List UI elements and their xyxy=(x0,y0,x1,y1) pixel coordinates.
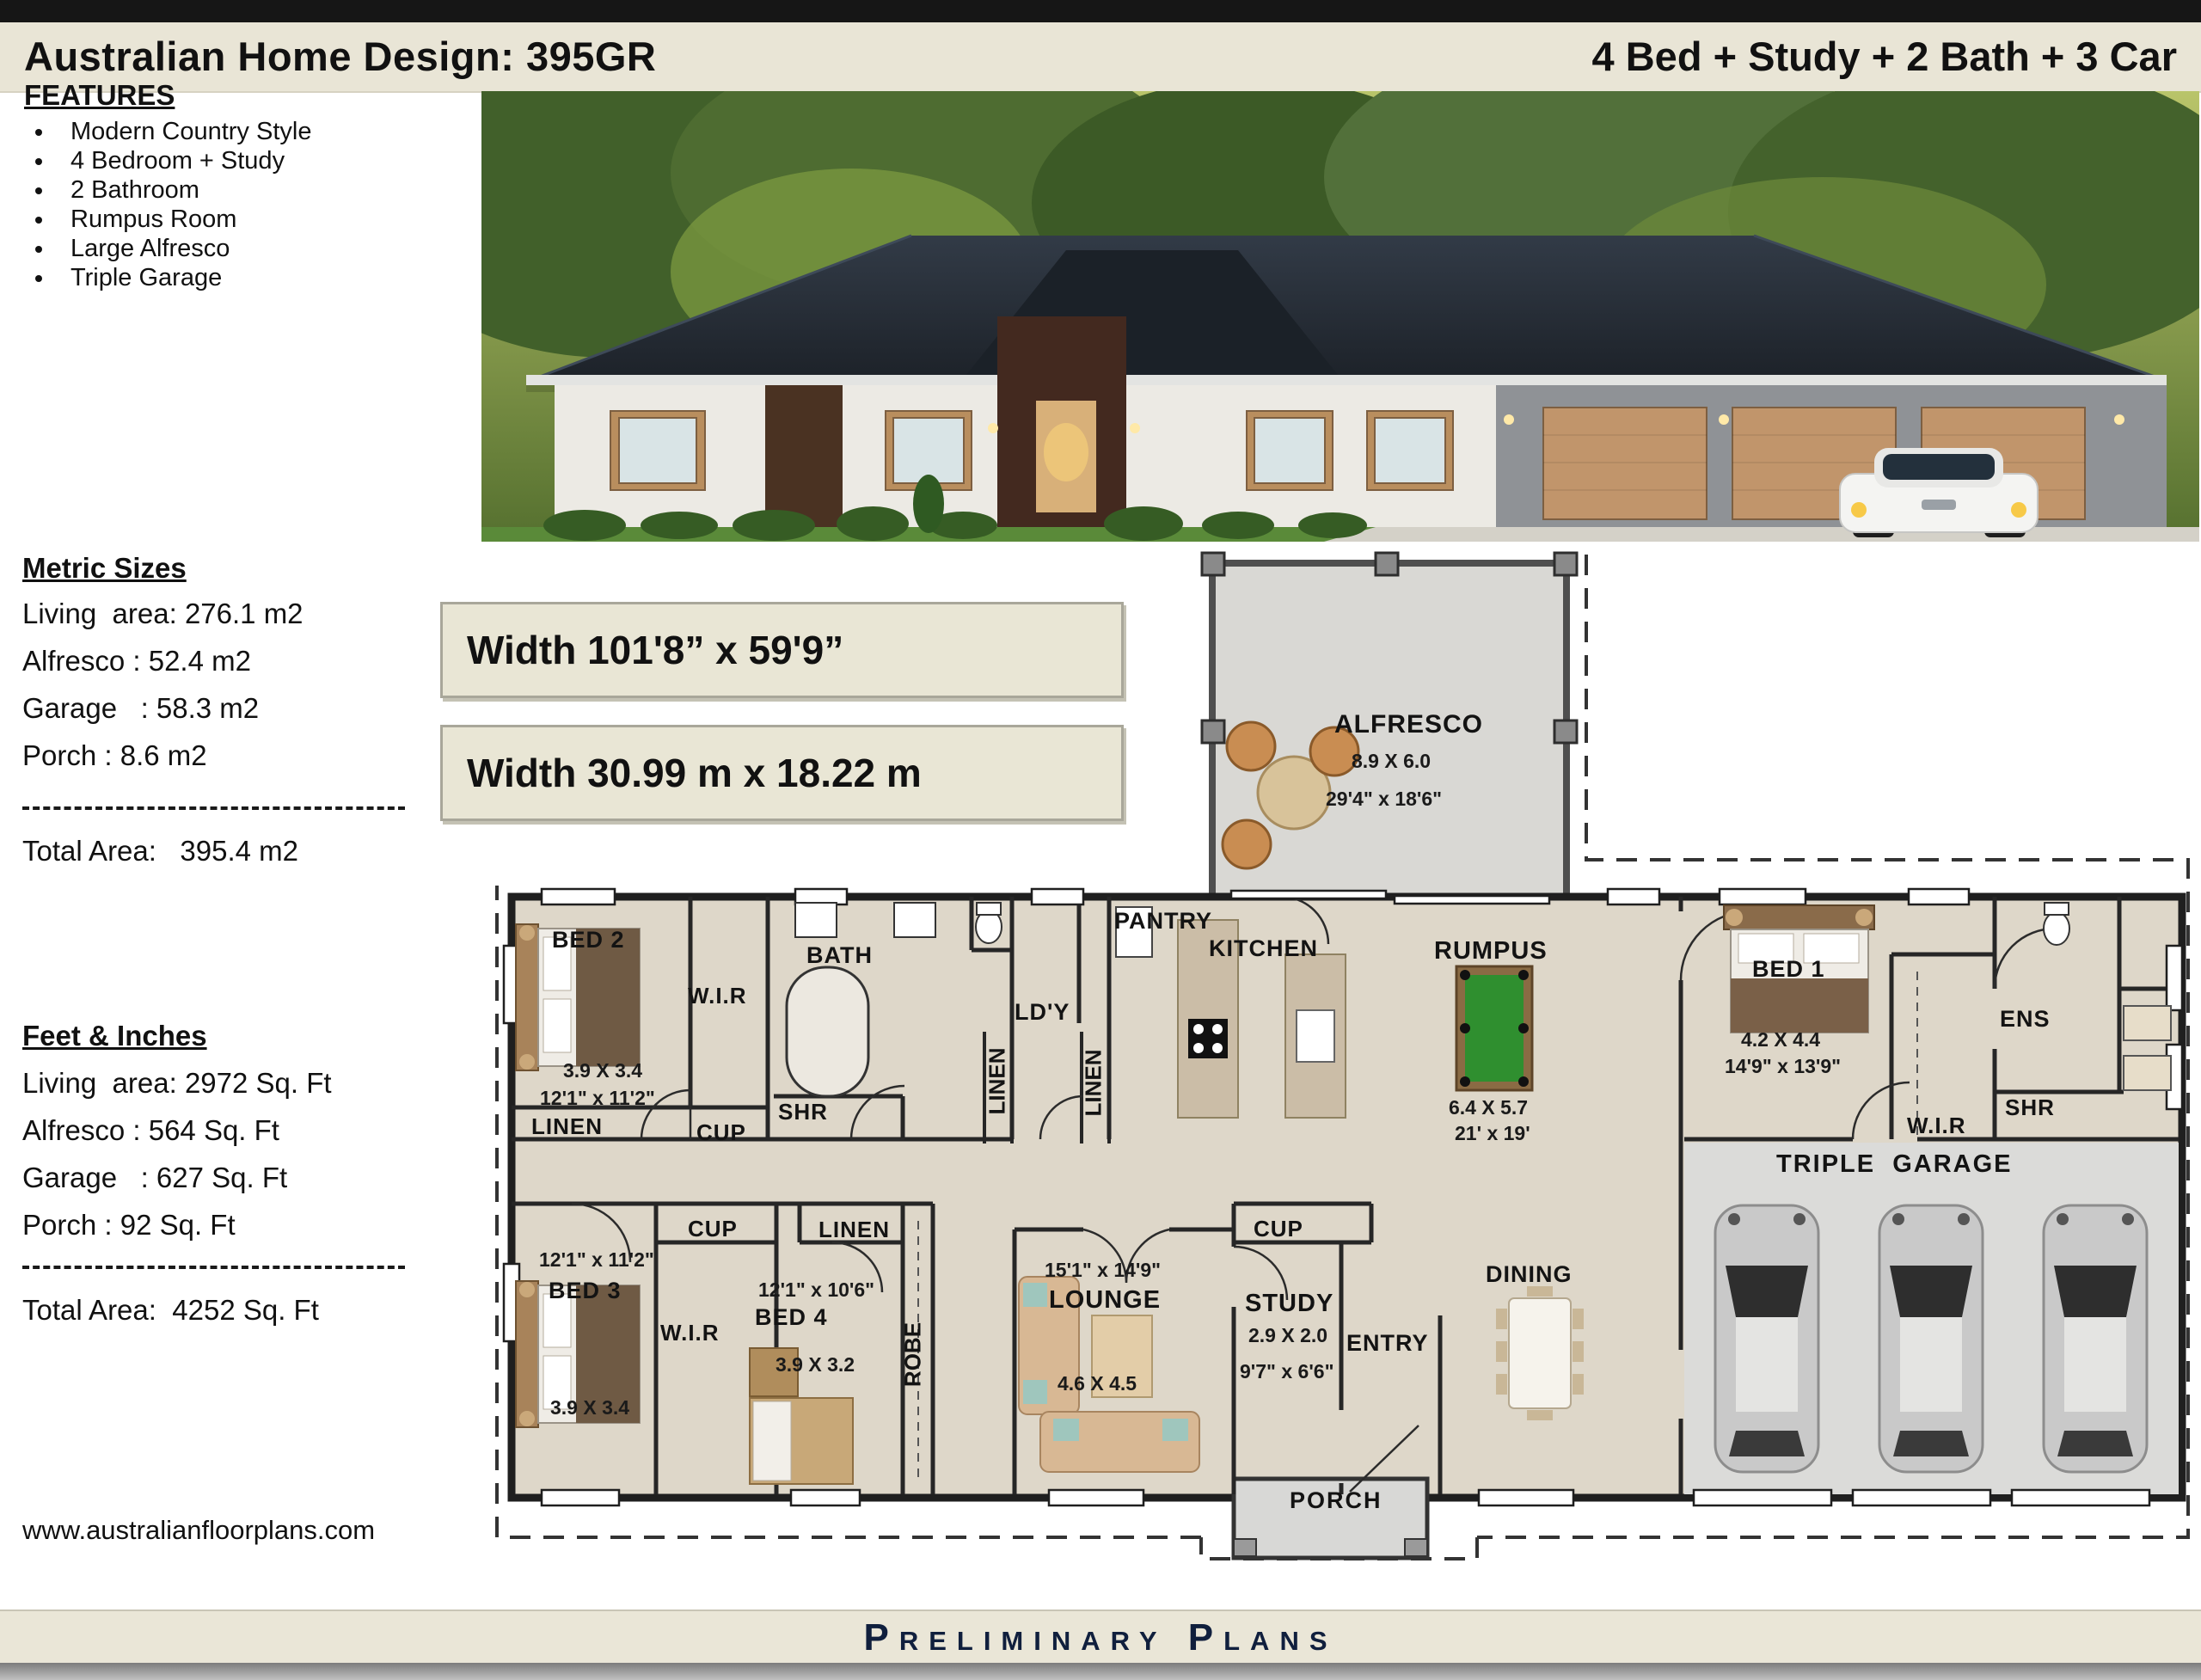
room-label-lounge: LOUNGE xyxy=(1049,1286,1161,1315)
room-dim-rumpus-imperial: 21' x 19' xyxy=(1455,1122,1530,1145)
house-photo xyxy=(481,91,2199,542)
brochure-page: Australian Home Design: 395GR 4 Bed + St… xyxy=(0,0,2201,1680)
room-dim-alfresco-metric: 8.9 X 6.0 xyxy=(1352,750,1431,773)
room-dim-bed4-imperial: 12'1" x 10'6" xyxy=(758,1278,874,1302)
room-dim-bed3-imperial: 12'1" x 11'2" xyxy=(539,1248,654,1272)
feature-item: Rumpus Room xyxy=(55,205,311,234)
metric-total: Total Area: 395.4 m2 xyxy=(22,827,298,874)
feature-item: Large Alfresco xyxy=(55,234,311,263)
feature-item: 4 Bedroom + Study xyxy=(55,146,311,175)
room-label-robe: ROBE xyxy=(900,1308,927,1402)
metric-lines: Living area: 276.1 m2 Alfresco : 52.4 m2… xyxy=(22,590,303,779)
footer-bar: Preliminary Plans xyxy=(0,1609,2201,1665)
room-dim-bed1-imperial: 14'9" x 13'9" xyxy=(1725,1055,1841,1078)
room-dim-bed1-metric: 4.2 X 4.4 xyxy=(1741,1028,1820,1052)
room-label-bed1: BED 1 xyxy=(1752,956,1825,983)
room-label-entry: ENTRY xyxy=(1346,1330,1429,1357)
top-black-bar xyxy=(0,0,2201,22)
metric-line: Garage : 58.3 m2 xyxy=(22,684,303,732)
room-label-wir3: W.I.R xyxy=(660,1320,720,1346)
room-dim-lounge-imperial: 15'1" x 14'9" xyxy=(1045,1259,1161,1282)
room-label-linen2: LINEN xyxy=(984,1034,1011,1129)
room-label-bed2: BED 2 xyxy=(552,927,625,953)
feature-item: Modern Country Style xyxy=(55,117,311,146)
room-label-porch: PORCH xyxy=(1290,1487,1383,1514)
room-dim-lounge-metric: 4.6 X 4.5 xyxy=(1058,1372,1137,1395)
room-label-garage: TRIPLE GARAGE xyxy=(1776,1150,2013,1179)
features-list: Modern Country Style 4 Bedroom + Study 2… xyxy=(26,117,311,292)
room-label-shr2: SHR xyxy=(2005,1094,2055,1121)
imperial-line: Living area: 2972 Sq. Ft xyxy=(22,1059,332,1107)
room-label-alfresco: ALFRESCO xyxy=(1334,710,1483,739)
room-dim-bed2-metric: 3.9 X 3.4 xyxy=(563,1059,642,1082)
features-heading: FEATURES xyxy=(24,79,175,112)
bottom-gray-bar xyxy=(0,1663,2201,1680)
room-label-linen3: LINEN xyxy=(1081,1036,1107,1131)
room-label-rumpus: RUMPUS xyxy=(1434,937,1548,966)
room-dim-rumpus-metric: 6.4 X 5.7 xyxy=(1449,1096,1528,1119)
feature-item: 2 Bathroom xyxy=(55,175,311,205)
room-label-wir1: W.I.R xyxy=(1907,1113,1966,1139)
room-label-bed3: BED 3 xyxy=(549,1278,622,1304)
imperial-line: Porch : 92 Sq. Ft xyxy=(22,1201,332,1248)
room-label-study: STUDY xyxy=(1245,1290,1333,1318)
imperial-lines: Living area: 2972 Sq. Ft Alfresco : 564 … xyxy=(22,1059,332,1248)
room-label-wir2: W.I.R xyxy=(688,983,747,1009)
dashed-separator xyxy=(22,1266,405,1269)
room-label-cup2: CUP xyxy=(688,1216,738,1242)
floor-plan xyxy=(490,542,2192,1565)
page-subtitle: 4 Bed + Study + 2 Bath + 3 Car xyxy=(1592,22,2177,91)
feature-item: Triple Garage xyxy=(55,263,311,292)
metric-line: Alfresco : 52.4 m2 xyxy=(22,637,303,684)
room-label-shr1: SHR xyxy=(778,1099,828,1125)
imperial-heading: Feet & Inches xyxy=(22,1020,207,1052)
footer-title: Preliminary Plans xyxy=(0,1611,2201,1665)
room-label-linen4: LINEN xyxy=(818,1217,890,1243)
room-label-bath: BATH xyxy=(806,942,873,969)
room-label-ens: ENS xyxy=(2000,1006,2051,1033)
room-label-pantry: PANTRY xyxy=(1114,908,1212,935)
room-label-dining: DINING xyxy=(1486,1261,1573,1288)
metric-heading: Metric Sizes xyxy=(22,552,187,585)
garage-cars xyxy=(1715,1205,2147,1472)
room-dim-bed3-metric: 3.9 X 3.4 xyxy=(550,1396,629,1419)
room-label-cup1: CUP xyxy=(696,1119,746,1146)
room-dim-alfresco-imperial: 29'4" x 18'6" xyxy=(1326,788,1442,811)
dining-table xyxy=(1496,1286,1584,1420)
room-dim-bed2-imperial: 12'1" x 11'2" xyxy=(540,1087,655,1110)
metric-line: Living area: 276.1 m2 xyxy=(22,590,303,637)
room-label-ldy: LD'Y xyxy=(1015,999,1070,1026)
imperial-line: Alfresco : 564 Sq. Ft xyxy=(22,1107,332,1154)
room-label-kitchen: KITCHEN xyxy=(1209,935,1318,962)
metric-line: Porch : 8.6 m2 xyxy=(22,732,303,779)
website-url: www.australianfloorplans.com xyxy=(22,1515,375,1546)
pool-table xyxy=(1456,966,1532,1090)
imperial-total: Total Area: 4252 Sq. Ft xyxy=(22,1286,319,1334)
imperial-line: Garage : 627 Sq. Ft xyxy=(22,1154,332,1201)
room-dim-study-metric: 2.9 X 2.0 xyxy=(1248,1324,1327,1347)
room-label-cup3: CUP xyxy=(1254,1216,1303,1242)
room-dim-bed4-metric: 3.9 X 3.2 xyxy=(776,1353,855,1376)
dashed-separator xyxy=(22,806,405,810)
room-dim-study-imperial: 9'7" x 6'6" xyxy=(1240,1360,1334,1383)
room-label-linen1: LINEN xyxy=(531,1113,603,1140)
room-label-bed4: BED 4 xyxy=(755,1304,828,1331)
